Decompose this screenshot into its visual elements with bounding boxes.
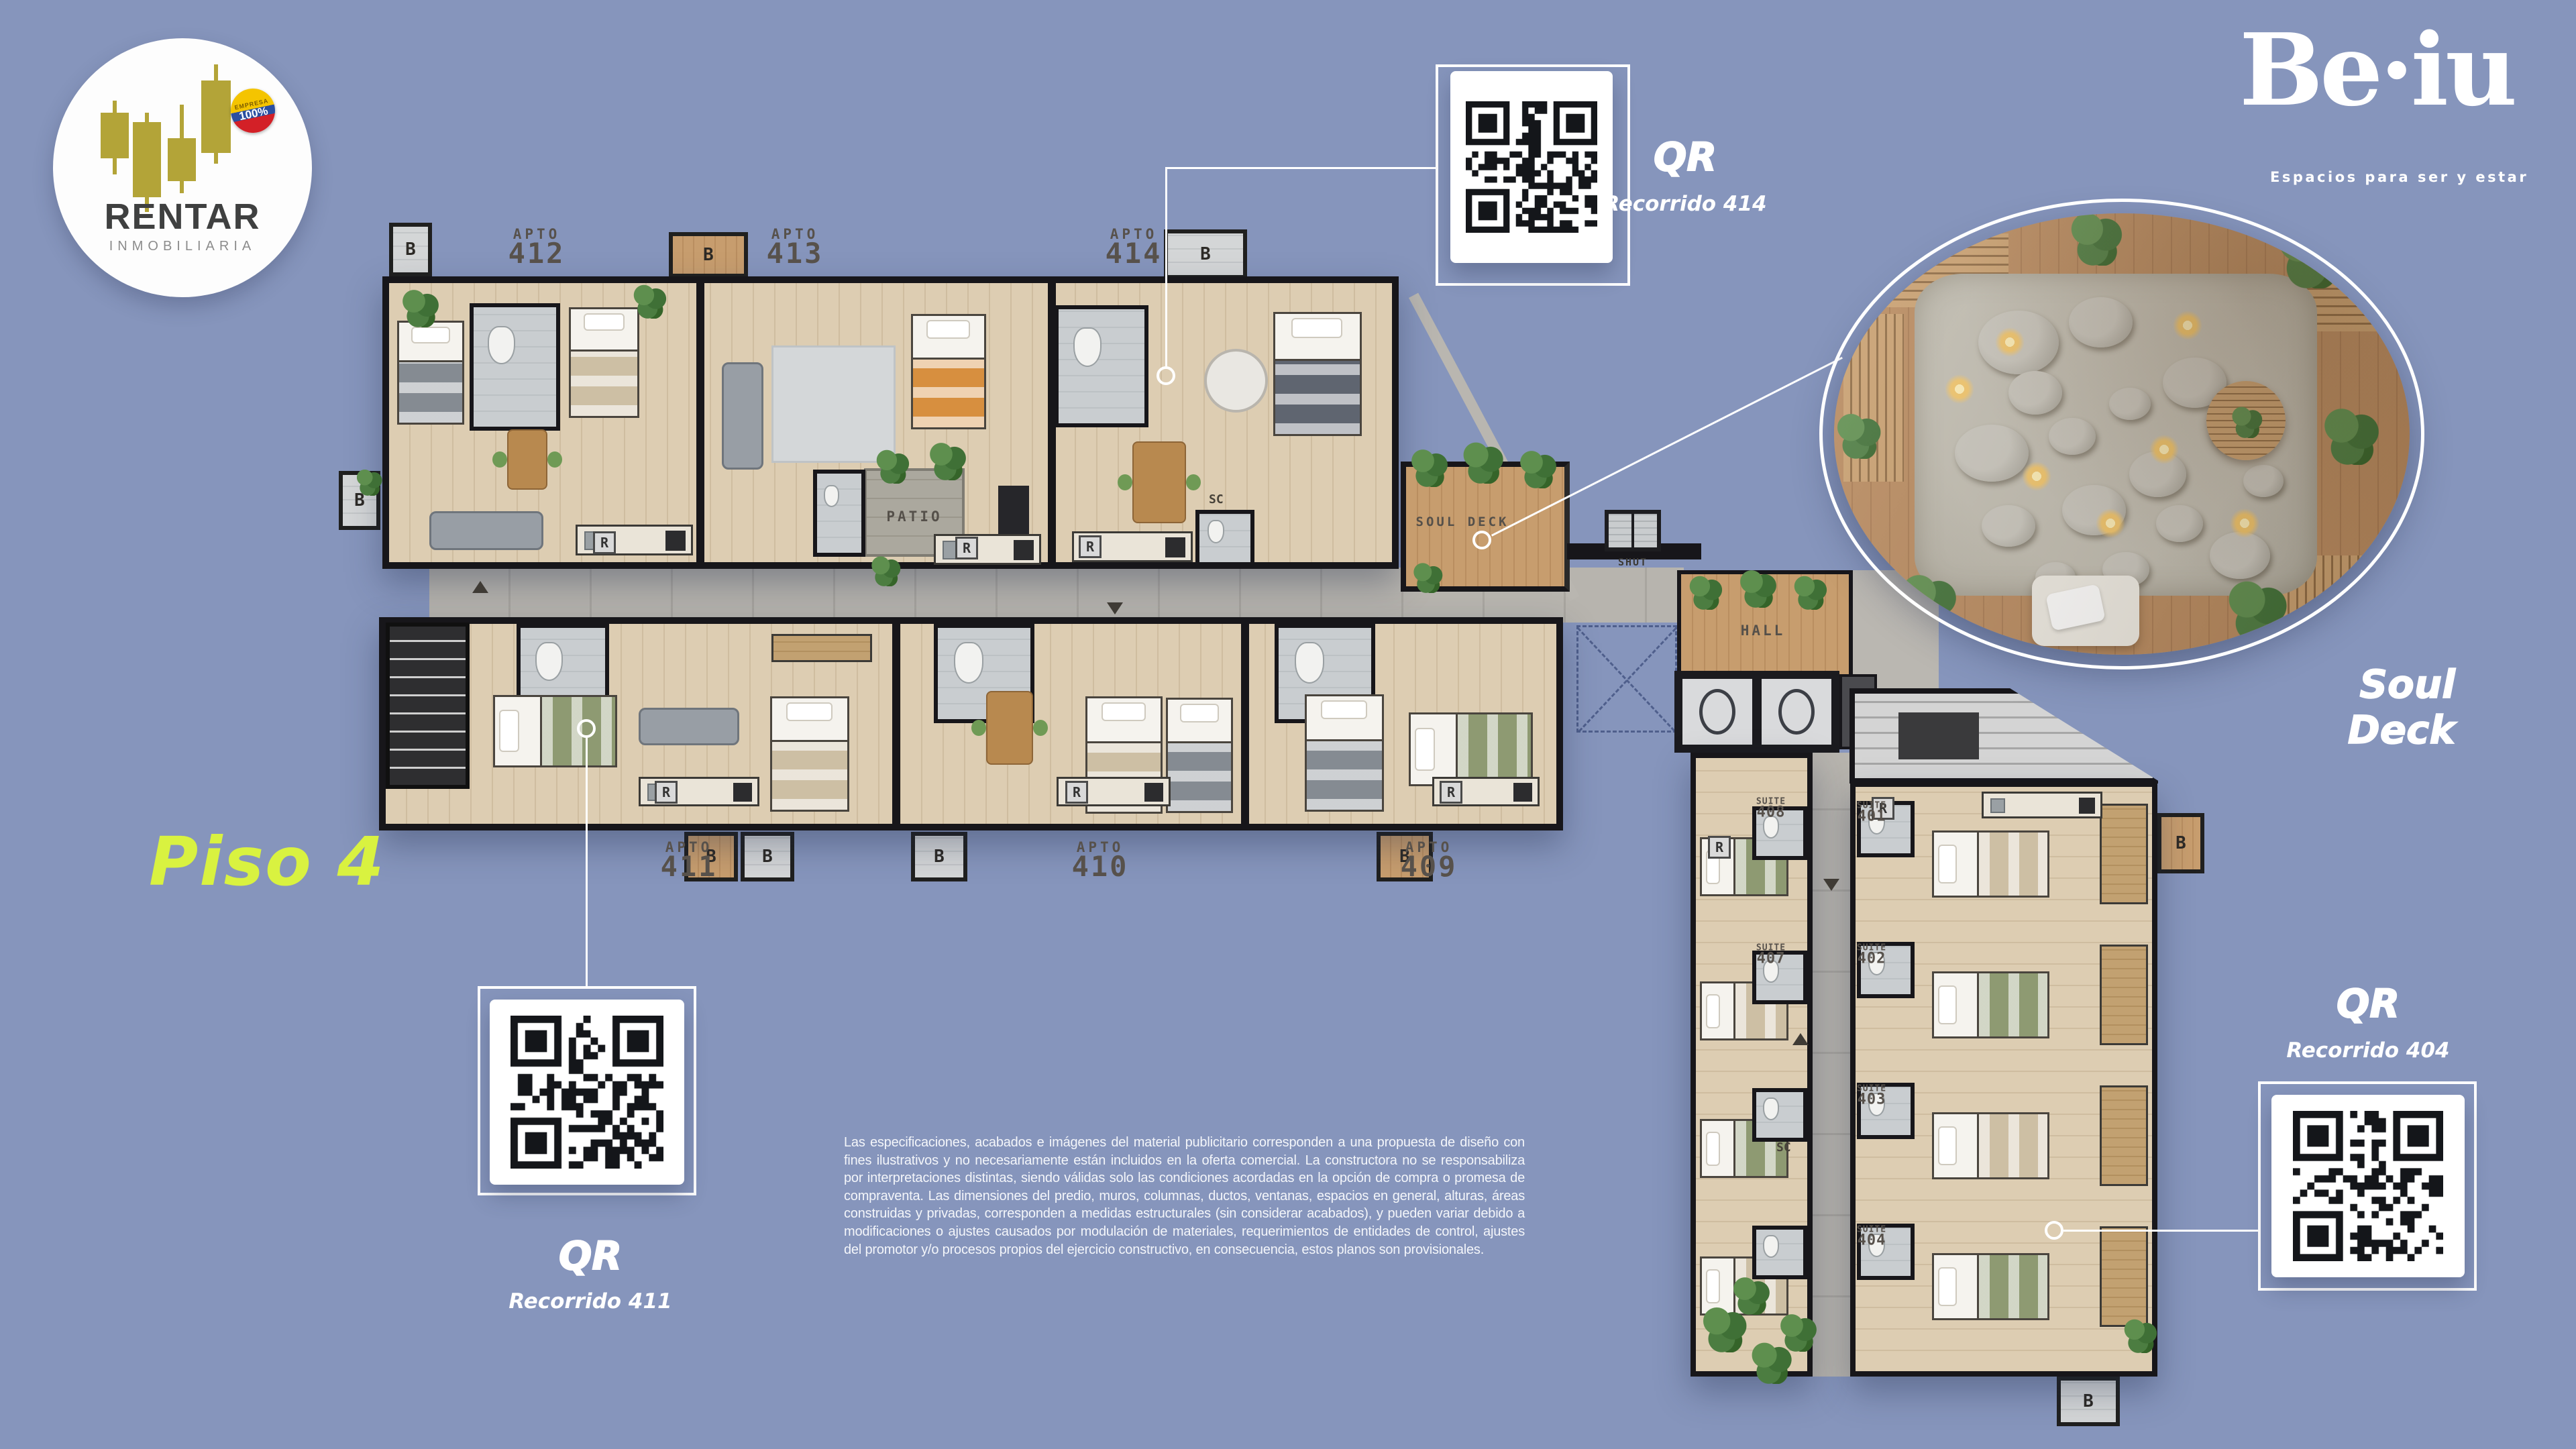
apartment-divider [696,276,704,569]
plant [927,440,967,480]
fridge-badge: R [593,531,616,554]
toilet [824,485,839,507]
poster-canvas: BBBBBBBBBB RRRRRR [0,0,2576,1449]
stove [1014,540,1034,560]
staircase-core [1898,712,1979,759]
bed-pillow [1415,728,1435,771]
balcony: B [1164,229,1247,279]
plant [1687,574,1723,610]
suite-label: SUITE402 [1857,944,1886,966]
bed-pillow [1706,994,1720,1028]
bed-pillow [1938,845,1957,883]
wardrobe [2100,804,2148,904]
apartment-divider [892,617,900,830]
stove [665,531,686,551]
plant [1737,568,1778,608]
candlestick-bar [101,113,129,158]
leader-soul-marker [1472,531,1491,549]
fridge-badge: R [1440,781,1462,804]
utility-badge: SC [1776,1140,1791,1155]
bathroom [813,470,865,557]
bed-furniture [1409,712,1533,786]
soul-deck-ring [1819,199,2424,669]
plant [1409,447,1449,487]
bed-furniture [1932,971,2049,1038]
void-dashed-area [1576,625,1677,733]
garbage-chute [1605,510,1661,551]
stove [2079,798,2095,814]
fridge-badge: R [655,781,678,804]
wardrobe [2100,1226,2148,1327]
bed-blanket [1456,712,1533,786]
bathroom [1752,1088,1807,1142]
apartment-label: APTO410 [1072,841,1129,880]
beiu-tagline: Espacios para ser y estar [2270,169,2528,185]
balcony: B [911,832,967,881]
balcony: B [2157,813,2204,873]
candlestick-bar [133,122,161,197]
suite-label: SUITE404 [1857,1226,1886,1248]
candlestick-wick [113,158,117,174]
bed-pillow [926,320,970,339]
beiu-logo: Be·iu [2239,20,2514,119]
bed-blanket [1977,971,2050,1038]
balcony: B [741,832,794,881]
qr-card-404 [2271,1095,2465,1277]
bed-pillow [499,710,519,752]
void-diagonal [1578,623,1680,732]
plant [1778,1311,1818,1352]
bed-furniture [1305,694,1384,812]
patio-label: PATIO [886,508,942,525]
dining-table [507,429,547,490]
void-diagonal [1577,627,1679,736]
bed-furniture [569,307,639,418]
kitchen-counter [934,534,1041,565]
plant [1460,439,1505,484]
bed-furniture [770,696,849,812]
chair [1186,474,1201,490]
bed-blanket [1977,1112,2050,1179]
bathroom [1752,1226,1807,1279]
dining-table [986,691,1033,765]
qr-title-414: QR [1654,134,1717,180]
apartment-label: APTO412 [508,228,566,267]
plant [1731,1275,1771,1315]
staircase-top [1849,688,2158,784]
bed-blanket [569,350,639,418]
rentar-name: RENTAR [53,196,312,237]
qr-code-411 [511,1016,663,1169]
chair [971,720,986,736]
sofa [722,362,763,470]
chute-label: SHUT [1618,556,1648,568]
corridor-arrow [1792,1033,1809,1045]
wardrobe [771,634,872,662]
qr-subtitle-411: Recorrido 411 [508,1289,672,1313]
qr-code-404 [2293,1111,2443,1261]
sofa [639,708,739,745]
fridge-badge: R [1079,535,1102,558]
wardrobe [2100,945,2148,1045]
rug [771,345,896,463]
qr-subtitle-404: Recorrido 404 [2286,1038,2449,1063]
bed-blanket [1977,830,2050,898]
bed-furniture [1932,1253,2049,1320]
bed-blanket [1305,739,1384,812]
elevator-cabin [1762,679,1831,745]
suite-label: SUITE401 [1857,802,1886,824]
toilet [488,326,515,364]
elevator-cabin [1682,679,1752,745]
bed-blanket [770,740,849,812]
plant [2122,1317,2158,1353]
candlestick-wick [180,105,184,138]
soul-deck-plan-label: SOUL DECK [1416,515,1509,529]
fridge-badge: R [1708,836,1731,859]
bed-furniture [1932,830,2049,898]
stove [733,783,752,802]
hall-label: HALL [1741,623,1786,639]
suite-label: SUITE408 [1756,798,1786,820]
kitchen-counter [1982,792,2102,818]
fridge-badge: R [1065,781,1088,804]
stair-shaft [386,623,470,789]
bathroom [1195,510,1254,566]
toilet [954,642,983,684]
toilet [535,642,563,681]
candlestick-wick [180,181,184,193]
chair [547,451,562,468]
bed-blanket [1273,359,1362,436]
bed-pillow [1102,702,1146,721]
candlestick-bar [168,138,196,181]
leader-414-v [1165,167,1167,366]
candlestick-wick [214,153,218,164]
bed-blanket [1166,741,1233,813]
bed-furniture [911,314,986,429]
wardrobe [2100,1085,2148,1186]
plant [1411,561,1444,593]
rentar-logo-circle [53,38,312,297]
qr-title-404: QR [2337,981,2400,1026]
candlestick-wick [214,64,218,80]
qr-subtitle-414: Recorrido 414 [1603,192,1766,216]
bed-furniture [493,695,617,767]
bed-pillow [1321,700,1366,719]
leader-soul-deck [1491,357,1843,537]
leader-411-v [586,738,588,987]
stove [1165,537,1185,557]
bed-pillow [411,327,450,343]
bed-pillow [1938,1126,1957,1165]
lounge-chair [1204,349,1268,413]
bed-pillow [786,702,832,721]
balcony: B [389,223,432,276]
bed-pillow [1938,1267,1957,1306]
bed-furniture [1273,312,1362,436]
plant [874,447,910,484]
bed-pillow [1291,318,1343,338]
chair [492,451,507,468]
wing-corridor [1813,753,1850,1377]
bed-furniture [397,321,464,425]
apartment-divider [1241,617,1249,830]
corridor-arrow [472,581,488,593]
toilet [1073,327,1102,367]
candlestick-wick [145,113,149,122]
bed-furniture [1166,698,1233,813]
fridge-badge: R [955,537,978,559]
chair [1033,720,1048,736]
leader-414-h [1165,167,1436,169]
elevators-block [1674,671,1839,753]
bed-pillow [1180,704,1219,722]
plant [869,554,902,586]
plant [631,282,667,319]
bed-blanket [1977,1253,2050,1320]
plant [1517,448,1558,488]
bathroom [1055,305,1148,427]
suite-label: SUITE407 [1756,944,1786,966]
leader-411-marker [577,719,596,738]
leader-404-marker [2045,1221,2063,1240]
leader-414-marker [1157,366,1175,385]
corridor-arrow [1107,602,1123,614]
plant [400,287,440,327]
chair [1118,474,1132,490]
bed-pillow [584,313,625,331]
stove [1144,783,1163,802]
leader-404-h [2063,1230,2259,1232]
sofa [429,511,543,550]
candlestick-wick [113,101,117,113]
apartment-label: APTO409 [1401,841,1458,880]
bed-furniture [1932,1112,2049,1179]
balcony: B [669,232,748,278]
bathroom [470,303,560,431]
toilet [1295,642,1324,684]
stove [1513,783,1532,802]
plant [1792,574,1828,610]
corridor-arrow [1823,879,1839,891]
bed-pillow [1706,1132,1720,1166]
sink [1990,798,2005,813]
qr-card-414 [1450,71,1613,263]
floor-title: Piso 4 [149,822,385,901]
utility-badge: SC [1209,492,1224,506]
dining-table [1132,441,1186,523]
apartment-label: APTO411 [661,841,718,880]
soul-deck-caption: Soul Deck [2241,661,2455,753]
toilet [1207,520,1224,543]
qr-card-411 [490,1000,684,1185]
plant [355,468,383,496]
bed-blanket [397,360,464,425]
apartment-label: APTO414 [1106,228,1163,267]
bed-pillow [1938,985,1957,1024]
bed-pillow [1706,1269,1720,1303]
apartment-label: APTO413 [767,228,824,267]
bed-blanket [911,358,986,429]
disclaimer-text: Las especificaciones, acabados e imágene… [844,1134,1525,1258]
candlestick-bar [201,80,231,153]
rentar-subtitle: INMOBILIARIA [53,239,312,254]
qr-code-414 [1466,101,1597,233]
balcony: B [2057,1377,2120,1426]
qr-title-411: QR [559,1233,622,1279]
suite-label: SUITE403 [1857,1085,1886,1107]
